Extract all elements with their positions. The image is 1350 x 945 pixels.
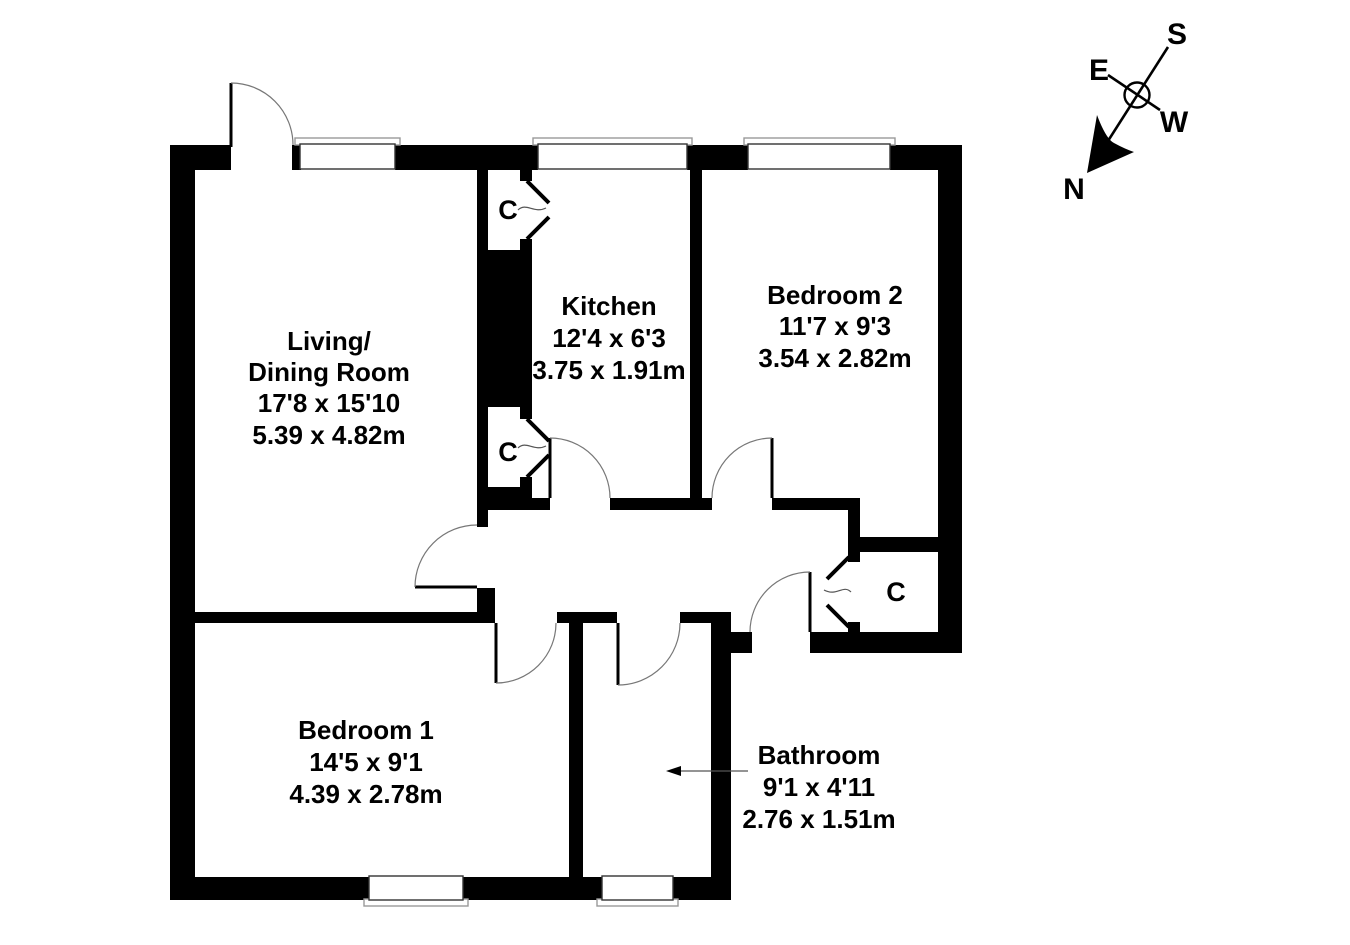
living-room-dims-imperial: 17'8 x 15'10 [258,388,401,418]
living-room-name-line2: Dining Room [248,357,410,387]
floorplan-drawing: Living/ Dining Room 17'8 x 15'10 5.39 x … [0,0,1350,945]
bedroom2-dims-metric: 3.54 x 2.82m [758,343,911,373]
bathroom-name: Bathroom [758,740,881,770]
bedroom2-dims-imperial: 11'7 x 9'3 [779,311,891,341]
closet-label-hall: C [886,577,906,607]
compass-north-arrowhead [1087,115,1134,173]
compass-label-south: S [1167,18,1187,51]
bathroom-dims-metric: 2.76 x 1.51m [742,804,895,834]
window-living-room [295,138,400,169]
compass-east-west-axis [1108,75,1160,110]
compass-rose: S E W N [1063,18,1189,206]
window-bedroom2 [744,138,895,169]
window-bedroom1 [364,876,468,906]
kitchen-dims-metric: 3.75 x 1.91m [532,355,685,385]
window-kitchen [533,138,692,169]
bedroom2-name: Bedroom 2 [767,280,903,310]
bedroom1-dims-imperial: 14'5 x 9'1 [309,747,423,777]
door-kitchen [550,438,610,498]
bedroom1-name: Bedroom 1 [298,715,434,745]
kitchen-dims-imperial: 12'4 x 6'3 [552,323,666,353]
living-room-name-line1: Living/ [287,326,371,356]
door-entry-top-left [231,83,293,147]
door-bedroom1 [496,623,556,683]
door-bedroom2 [712,438,772,498]
bifold-closet-hall [824,557,851,627]
kitchen-name: Kitchen [561,291,656,321]
bifold-doors [518,181,851,627]
door-living-room [415,525,477,587]
bifold-closet-kitchen-top [518,181,549,239]
closet-label-kitchen-bottom: C [498,437,518,467]
door-entrance-hall [750,572,810,632]
window-bathroom [597,876,678,906]
closet-label-kitchen-top: C [498,195,518,225]
compass-label-west: W [1160,106,1189,139]
door-bathroom [618,623,680,685]
floorplan-page: Living/ Dining Room 17'8 x 15'10 5.39 x … [0,0,1350,945]
bifold-closet-kitchen-bottom [518,419,549,477]
bathroom-pointer-arrow [666,766,748,776]
compass-label-north: N [1063,173,1085,206]
bedroom1-dims-metric: 4.39 x 2.78m [289,779,442,809]
living-room-dims-metric: 5.39 x 4.82m [252,420,405,450]
bathroom-dims-imperial: 9'1 x 4'11 [763,772,875,802]
compass-label-east: E [1089,54,1109,87]
